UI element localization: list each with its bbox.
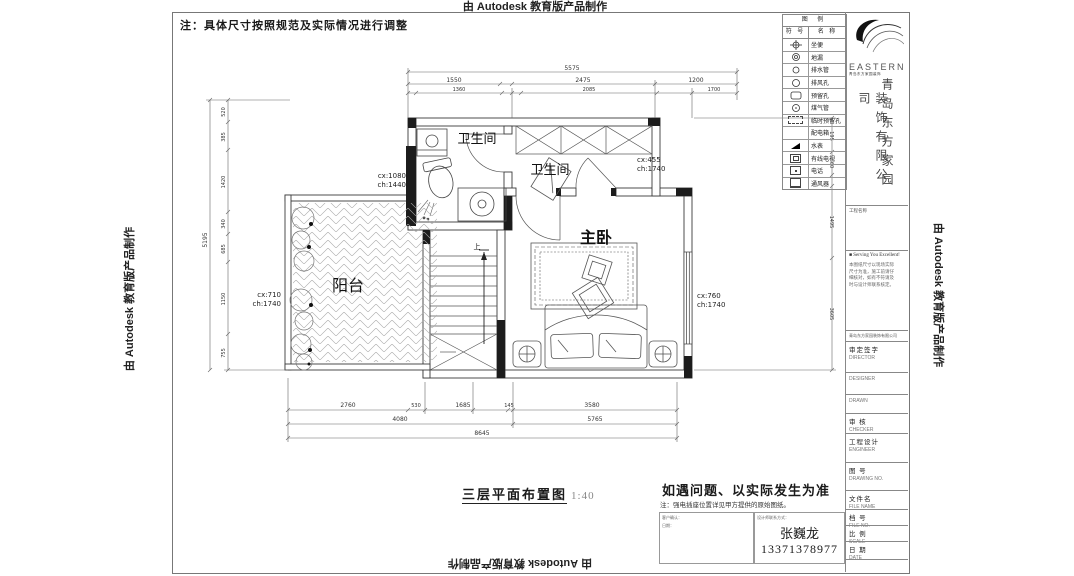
legend-row: 水表 <box>783 140 846 153</box>
warning-note: 注：强电插座位置详见甲方提供的原始图纸。 <box>660 499 790 509</box>
side-table <box>582 255 612 285</box>
address-line: 青岛东方家园装饰有限公司 <box>849 333 897 338</box>
warning-title: 如遇问题、以实际发生为准 <box>662 480 830 499</box>
dim: 1420 <box>221 176 227 189</box>
row-label-cn: 工程设计 <box>849 436 905 446</box>
annotation-ch: ch:1440 <box>378 181 406 189</box>
dim: 1150 <box>221 293 227 306</box>
dim: 1550 <box>446 77 461 84</box>
file-no-cell: 档 号 FILE NO. <box>846 509 908 525</box>
drain-pipe-symbol <box>783 64 809 76</box>
legend-row: 坐便 <box>783 39 846 52</box>
dim: 3605 <box>828 308 834 321</box>
annotation-cx: cx:455 <box>637 156 661 164</box>
legend-row: 排水管 <box>783 64 846 77</box>
ventilator-symbol <box>783 178 809 190</box>
row-label-cn: 档 号 <box>849 512 905 522</box>
drawing-sheet: 由 Autodesk 教育版产品制作 由 Autodesk 教育版产品制作 由 … <box>0 0 1074 576</box>
annotation-ch: ch:1740 <box>697 301 725 309</box>
water-meter-symbol <box>783 140 809 152</box>
dim: 685 <box>221 244 227 254</box>
file-name-cell: 文件名 FILE NAME <box>846 490 908 509</box>
client-confirm-box: 客户确认： 日期： <box>659 512 754 564</box>
designer-cell: DESIGNER <box>846 372 908 394</box>
stair-arrow <box>479 250 489 344</box>
dim-bottom-total: 8645 <box>474 430 489 437</box>
client-confirm-line: 客户确认： <box>660 513 753 523</box>
client-date-line: 日期： <box>660 523 753 529</box>
legend-row: 地漏 <box>783 52 846 65</box>
slogan-text: ■ Serving You Excellent! <box>849 253 905 258</box>
row-label-en: ENGINEER <box>849 447 905 453</box>
legend-row: 临时预留孔 <box>783 115 846 128</box>
designer-phone: 13371378977 <box>755 542 844 557</box>
row-label-cn: 审 核 <box>849 416 905 426</box>
stair-up-label: 上 <box>474 242 481 251</box>
dim: 3580 <box>584 402 599 409</box>
dim-left-total: 5195 <box>202 232 209 247</box>
cable-tv-symbol <box>783 152 809 164</box>
dim: 1685 <box>455 402 470 409</box>
row-label-en: DRAWING NO. <box>849 476 905 482</box>
dim: 2085 <box>583 87 596 93</box>
toilet-symbol <box>783 39 809 51</box>
row-label-cn: 日 期 <box>849 544 905 554</box>
telephone-symbol <box>783 165 809 177</box>
title-block: EASTERN 青岛东方家园装饰 青岛东方家园 装饰有限公司 工程名称 ■ Se… <box>845 12 909 572</box>
eastern-logo-subtext: 青岛东方家园装饰 <box>849 72 905 77</box>
legend-row: 通风器 <box>783 178 846 190</box>
dim: 4080 <box>392 416 407 423</box>
room-label-bathroom1: 卫生间 <box>457 131 496 146</box>
legend-row: 预留孔 <box>783 89 846 102</box>
dim: 1495 <box>828 216 834 229</box>
row-label-en: DESIGNER <box>849 376 905 382</box>
designer-contact-box: 设计师联系方式： 张巍龙 13371378977 <box>754 512 845 564</box>
dim: 520 <box>221 107 227 117</box>
ottoman <box>572 277 613 318</box>
legend-row: 煤气管 <box>783 102 846 115</box>
dim: 385 <box>221 132 227 142</box>
project-name-label: 工程名称 <box>849 208 867 213</box>
exhaust-vent-symbol <box>783 77 809 89</box>
dim: 1360 <box>453 87 466 93</box>
drawing-title: 三层平面布置图 <box>462 484 567 504</box>
annotation-cx: cx:710 <box>257 291 281 299</box>
eastern-logo-text: EASTERN <box>849 62 905 72</box>
window-right <box>684 252 692 344</box>
gas-pipe-symbol <box>783 102 809 114</box>
dim: 145 <box>504 403 514 409</box>
dim: 1200 <box>688 77 703 84</box>
annotation-cx: cx:760 <box>697 292 721 300</box>
row-label-cn: 审定签字 <box>849 344 905 354</box>
scale-cell: 比 例 SCALE <box>846 525 908 541</box>
legend-title: 图 例 <box>783 15 846 27</box>
legend-row: 电话 <box>783 165 846 178</box>
eastern-logo-icon <box>849 14 904 60</box>
dim: 755 <box>221 348 227 358</box>
row-label-en: DIRECTOR <box>849 355 905 361</box>
room-label-bathroom2: 卫生间 <box>530 162 569 177</box>
annotation-cx: cx:1080 <box>378 172 406 180</box>
dim: 530 <box>411 403 421 409</box>
nightstand-right <box>649 341 677 367</box>
balcony-tile <box>293 203 437 362</box>
legend-row: 排风孔 <box>783 77 846 90</box>
notes-cell: ■ Serving You Excellent! 本图纸尺寸以现场实际 尺寸为准… <box>846 250 908 330</box>
reserved-hole-symbol <box>783 89 809 101</box>
dim-top-total: 5575 <box>564 65 579 72</box>
note-line: 时与设计师联系核定。 <box>849 282 905 289</box>
brand-cell: EASTERN 青岛东方家园装饰 青岛东方家园 装饰有限公司 <box>846 12 908 205</box>
legend-col-symbol: 符 号 <box>783 27 809 38</box>
empty-cell <box>846 559 908 571</box>
designer-name: 张巍龙 <box>755 523 844 542</box>
drawn-cell: DRAWN <box>846 394 908 413</box>
designer-contact-header: 设计师联系方式： <box>755 513 844 523</box>
date-cell: 日 期 DATE <box>846 541 908 559</box>
floor-drain-symbol <box>783 52 809 64</box>
annotation-ch: ch:1740 <box>637 165 665 173</box>
rug <box>531 243 637 309</box>
address-cell: 青岛东方家园装饰有限公司 <box>846 330 908 341</box>
distribution-box-symbol <box>783 127 809 139</box>
dim: 2760 <box>340 402 355 409</box>
row-label-cn: 文件名 <box>849 493 905 503</box>
dim: 5765 <box>587 416 602 423</box>
dim: 1700 <box>708 87 721 93</box>
bedroom-furniture <box>513 243 677 368</box>
legend-row: 有线电视 <box>783 152 846 165</box>
annotation-ch: ch:1740 <box>253 300 281 308</box>
room-label-master: 主卧 <box>580 228 612 247</box>
director-cell: 审定签字 DIRECTOR <box>846 341 908 372</box>
wardrobe <box>516 126 652 154</box>
row-label-cn: 图 号 <box>849 465 905 475</box>
drawing-title-wrap: 三层平面布置图 1:40 <box>462 484 595 504</box>
engineer-cell: 工程设计 ENGINEER <box>846 433 908 462</box>
legend-col-name: 名 称 <box>809 27 846 38</box>
dim: 2475 <box>575 77 590 84</box>
temp-reserved-hole-symbol <box>783 115 809 127</box>
checker-cell: 审 核 CHECKER <box>846 413 908 433</box>
drawing-no-cell: 图 号 DRAWING NO. <box>846 462 908 490</box>
row-label-en: DRAWN <box>849 398 905 404</box>
room-label-balcony: 阳台 <box>332 277 364 295</box>
stairs <box>430 250 497 370</box>
drawing-scale: 1:40 <box>571 490 595 502</box>
legend-row: 配电箱 <box>783 127 846 140</box>
nightstand-left <box>513 341 541 367</box>
row-label-cn: 比 例 <box>849 528 905 538</box>
company-name-col-left: 装饰有限公司 <box>856 92 890 205</box>
legend-table: 图 例 符 号 名 称 坐便 地漏 排水管 排风孔 预留孔 煤气管 <box>782 14 847 190</box>
project-name-cell: 工程名称 <box>846 205 908 250</box>
dim: 340 <box>221 219 227 229</box>
bed <box>545 305 647 368</box>
